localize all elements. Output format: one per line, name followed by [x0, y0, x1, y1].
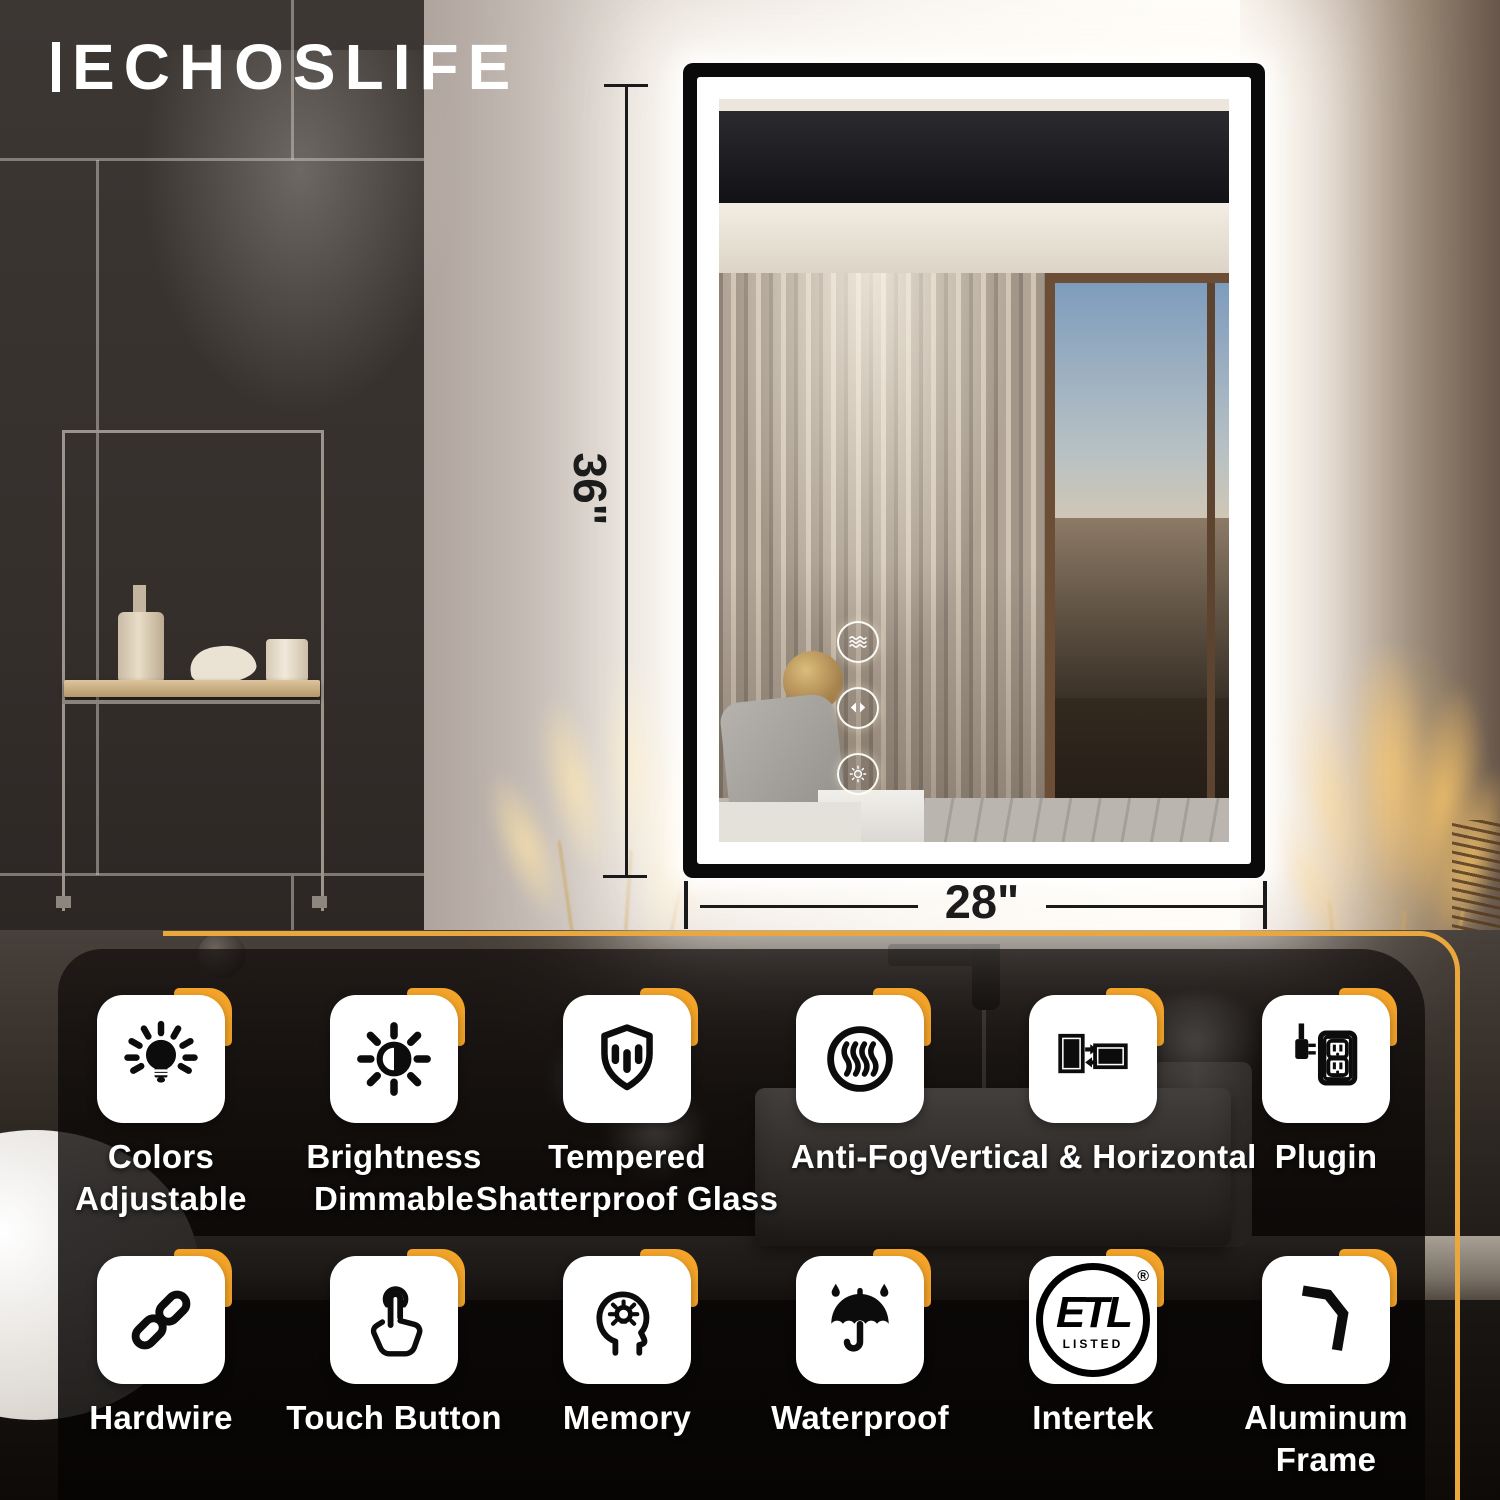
- height-dim-cap-bottom: [603, 875, 647, 878]
- width-dim-tick-right: [1263, 881, 1267, 929]
- led-mirror: [683, 63, 1265, 878]
- logo-accent-bar: [52, 42, 60, 92]
- left-right-arrows-icon: [846, 696, 870, 720]
- feature-anti-fog: Anti-Fog: [796, 995, 924, 1220]
- feature-plugin: Plugin: [1262, 995, 1390, 1220]
- height-dim-line: [625, 87, 628, 875]
- sun-icon: [846, 762, 870, 786]
- height-dimension-label: 36": [563, 429, 617, 549]
- mirror-glass: [697, 77, 1251, 864]
- feature-memory: Memory: [563, 1256, 691, 1481]
- window-mullion: [1207, 283, 1215, 810]
- feature-tempered-glass: Tempered Shatterproof Glass: [563, 995, 691, 1220]
- feature-aluminum-frame: Aluminum Frame: [1262, 1256, 1390, 1481]
- feature-brightness-dimmable: Brightness Dimmable: [330, 995, 458, 1220]
- tile-grout-line: [0, 158, 424, 161]
- etl-text: ETL: [1056, 1291, 1130, 1335]
- features-row-1: Colors Adjustable Brightness Dimmable: [97, 995, 1390, 1220]
- orientation-icon: [1029, 995, 1157, 1123]
- memory-head-icon: [563, 1256, 691, 1384]
- feature-label: Plugin: [1156, 1136, 1496, 1178]
- shelf-plank: [64, 680, 320, 697]
- shelf-foot: [312, 896, 327, 908]
- width-dim-line-left: [700, 905, 918, 908]
- color-switch-button: [837, 687, 879, 729]
- anti-fog-icon: [796, 995, 924, 1123]
- mirror-reflection: [719, 99, 1229, 842]
- features-row-2: Hardwire Touch Button: [97, 1256, 1390, 1481]
- chain-link-icon: [97, 1256, 225, 1384]
- brand-logo: ECHOSLIFE: [52, 30, 519, 104]
- shelf-foot: [56, 896, 71, 908]
- reflection-room: [719, 273, 1229, 842]
- anti-fog-button: [837, 621, 879, 663]
- shelf-bar: [62, 700, 320, 704]
- reflection-wall-band: [719, 203, 1229, 275]
- product-infographic: 36" 28" Co: [0, 0, 1500, 1500]
- spotlight-glow: [120, 50, 480, 450]
- logo-text: ECHOSLIFE: [72, 30, 519, 104]
- cup: [266, 639, 308, 682]
- registered-mark: ®: [1137, 1268, 1149, 1286]
- feature-waterproof: Waterproof: [796, 1256, 924, 1481]
- width-dimension-label: 28": [920, 874, 1044, 929]
- touch-hand-icon: [330, 1256, 458, 1384]
- frame-corner-icon: [1262, 1256, 1390, 1384]
- etl-badge: ETL LISTED ®: [1036, 1263, 1150, 1377]
- anti-fog-waves-icon: [846, 630, 870, 654]
- feature-label: Aluminum Frame: [1156, 1397, 1496, 1481]
- brightness-icon: [330, 995, 458, 1123]
- feature-intertek: ETL LISTED ® Intertek: [1029, 1256, 1157, 1481]
- feature-hardwire: Hardwire: [97, 1256, 225, 1481]
- bulb-color-icon: [97, 995, 225, 1123]
- soap-bottle: [118, 612, 164, 682]
- etl-listed-text: LISTED: [1063, 1337, 1124, 1351]
- reflection-ceiling-band: [719, 111, 1229, 203]
- sky: [1055, 283, 1229, 518]
- feature-touch-button: Touch Button: [330, 1256, 458, 1481]
- soap-pump: [133, 585, 146, 615]
- etl-listed-icon: ETL LISTED ®: [1029, 1256, 1157, 1384]
- feature-colors-adjustable: Colors Adjustable: [97, 995, 225, 1220]
- window-view: [1045, 273, 1229, 810]
- width-dim-tick-left: [684, 881, 688, 929]
- city-view: [1055, 518, 1229, 698]
- width-dim-line-right: [1046, 905, 1263, 908]
- umbrella-rain-icon: [796, 1256, 924, 1384]
- shield-glass-icon: [563, 995, 691, 1123]
- feature-vertical-horizontal: Vertical & Horizontal: [1029, 995, 1157, 1220]
- brightness-button: [837, 753, 879, 795]
- plug-outlet-icon: [1262, 995, 1390, 1123]
- bed: [719, 802, 861, 842]
- window-lower: [1055, 698, 1229, 810]
